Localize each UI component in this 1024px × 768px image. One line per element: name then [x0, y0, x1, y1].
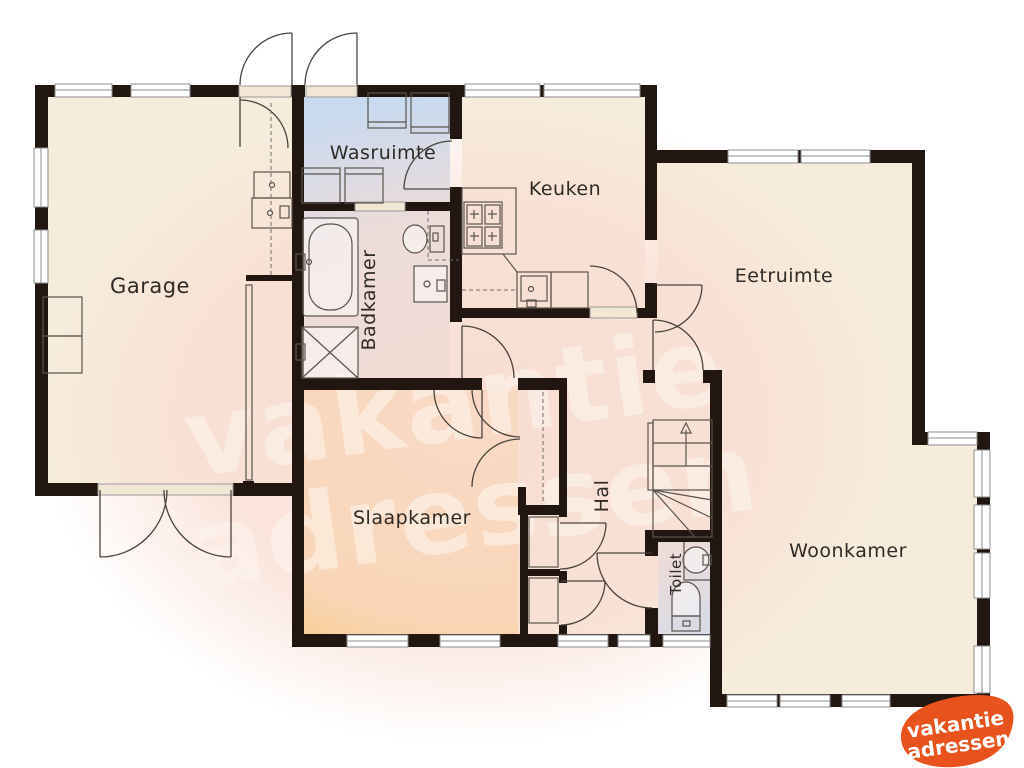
window	[728, 150, 798, 163]
bathtub-icon	[296, 218, 358, 316]
window	[974, 450, 990, 497]
window	[928, 432, 977, 445]
room-label-keuken: Keuken	[529, 178, 601, 200]
window	[34, 148, 48, 207]
room-label-eetruimte: Eetruimte	[735, 265, 833, 287]
wasruimte-door-slab	[306, 86, 357, 97]
window	[974, 553, 990, 598]
garage-door-slab	[98, 484, 233, 495]
window	[440, 635, 500, 647]
room-label-garage: Garage	[110, 274, 190, 298]
window	[842, 695, 890, 707]
window	[780, 695, 830, 707]
room-label-woonkamer: Woonkamer	[789, 540, 907, 562]
window	[34, 230, 48, 283]
window	[618, 635, 650, 647]
entry-door-slab	[239, 86, 291, 97]
room-label-slaapkamer: Slaapkamer	[353, 507, 471, 529]
window	[974, 646, 990, 693]
shower-icon	[296, 327, 358, 378]
window	[55, 84, 112, 97]
window	[544, 84, 640, 97]
window	[131, 84, 190, 97]
window	[347, 635, 408, 647]
window	[801, 150, 870, 163]
window	[974, 505, 990, 549]
bathroom-sink-icon	[414, 266, 447, 302]
room-label-toilet: Toilet	[667, 553, 685, 596]
floor-plan: vakantie adressen	[0, 0, 1024, 768]
window	[727, 695, 777, 707]
floor-plan-page: vakantie adressen	[0, 0, 1024, 768]
room-label-badkamer: Badkamer	[358, 249, 380, 350]
room-label-hal: Hal	[591, 480, 613, 513]
wasruimte-exterior-door	[305, 33, 357, 85]
window	[558, 635, 608, 647]
room-label-wasruimte: Wasruimte	[330, 142, 436, 164]
window	[465, 84, 540, 97]
window	[663, 635, 710, 647]
